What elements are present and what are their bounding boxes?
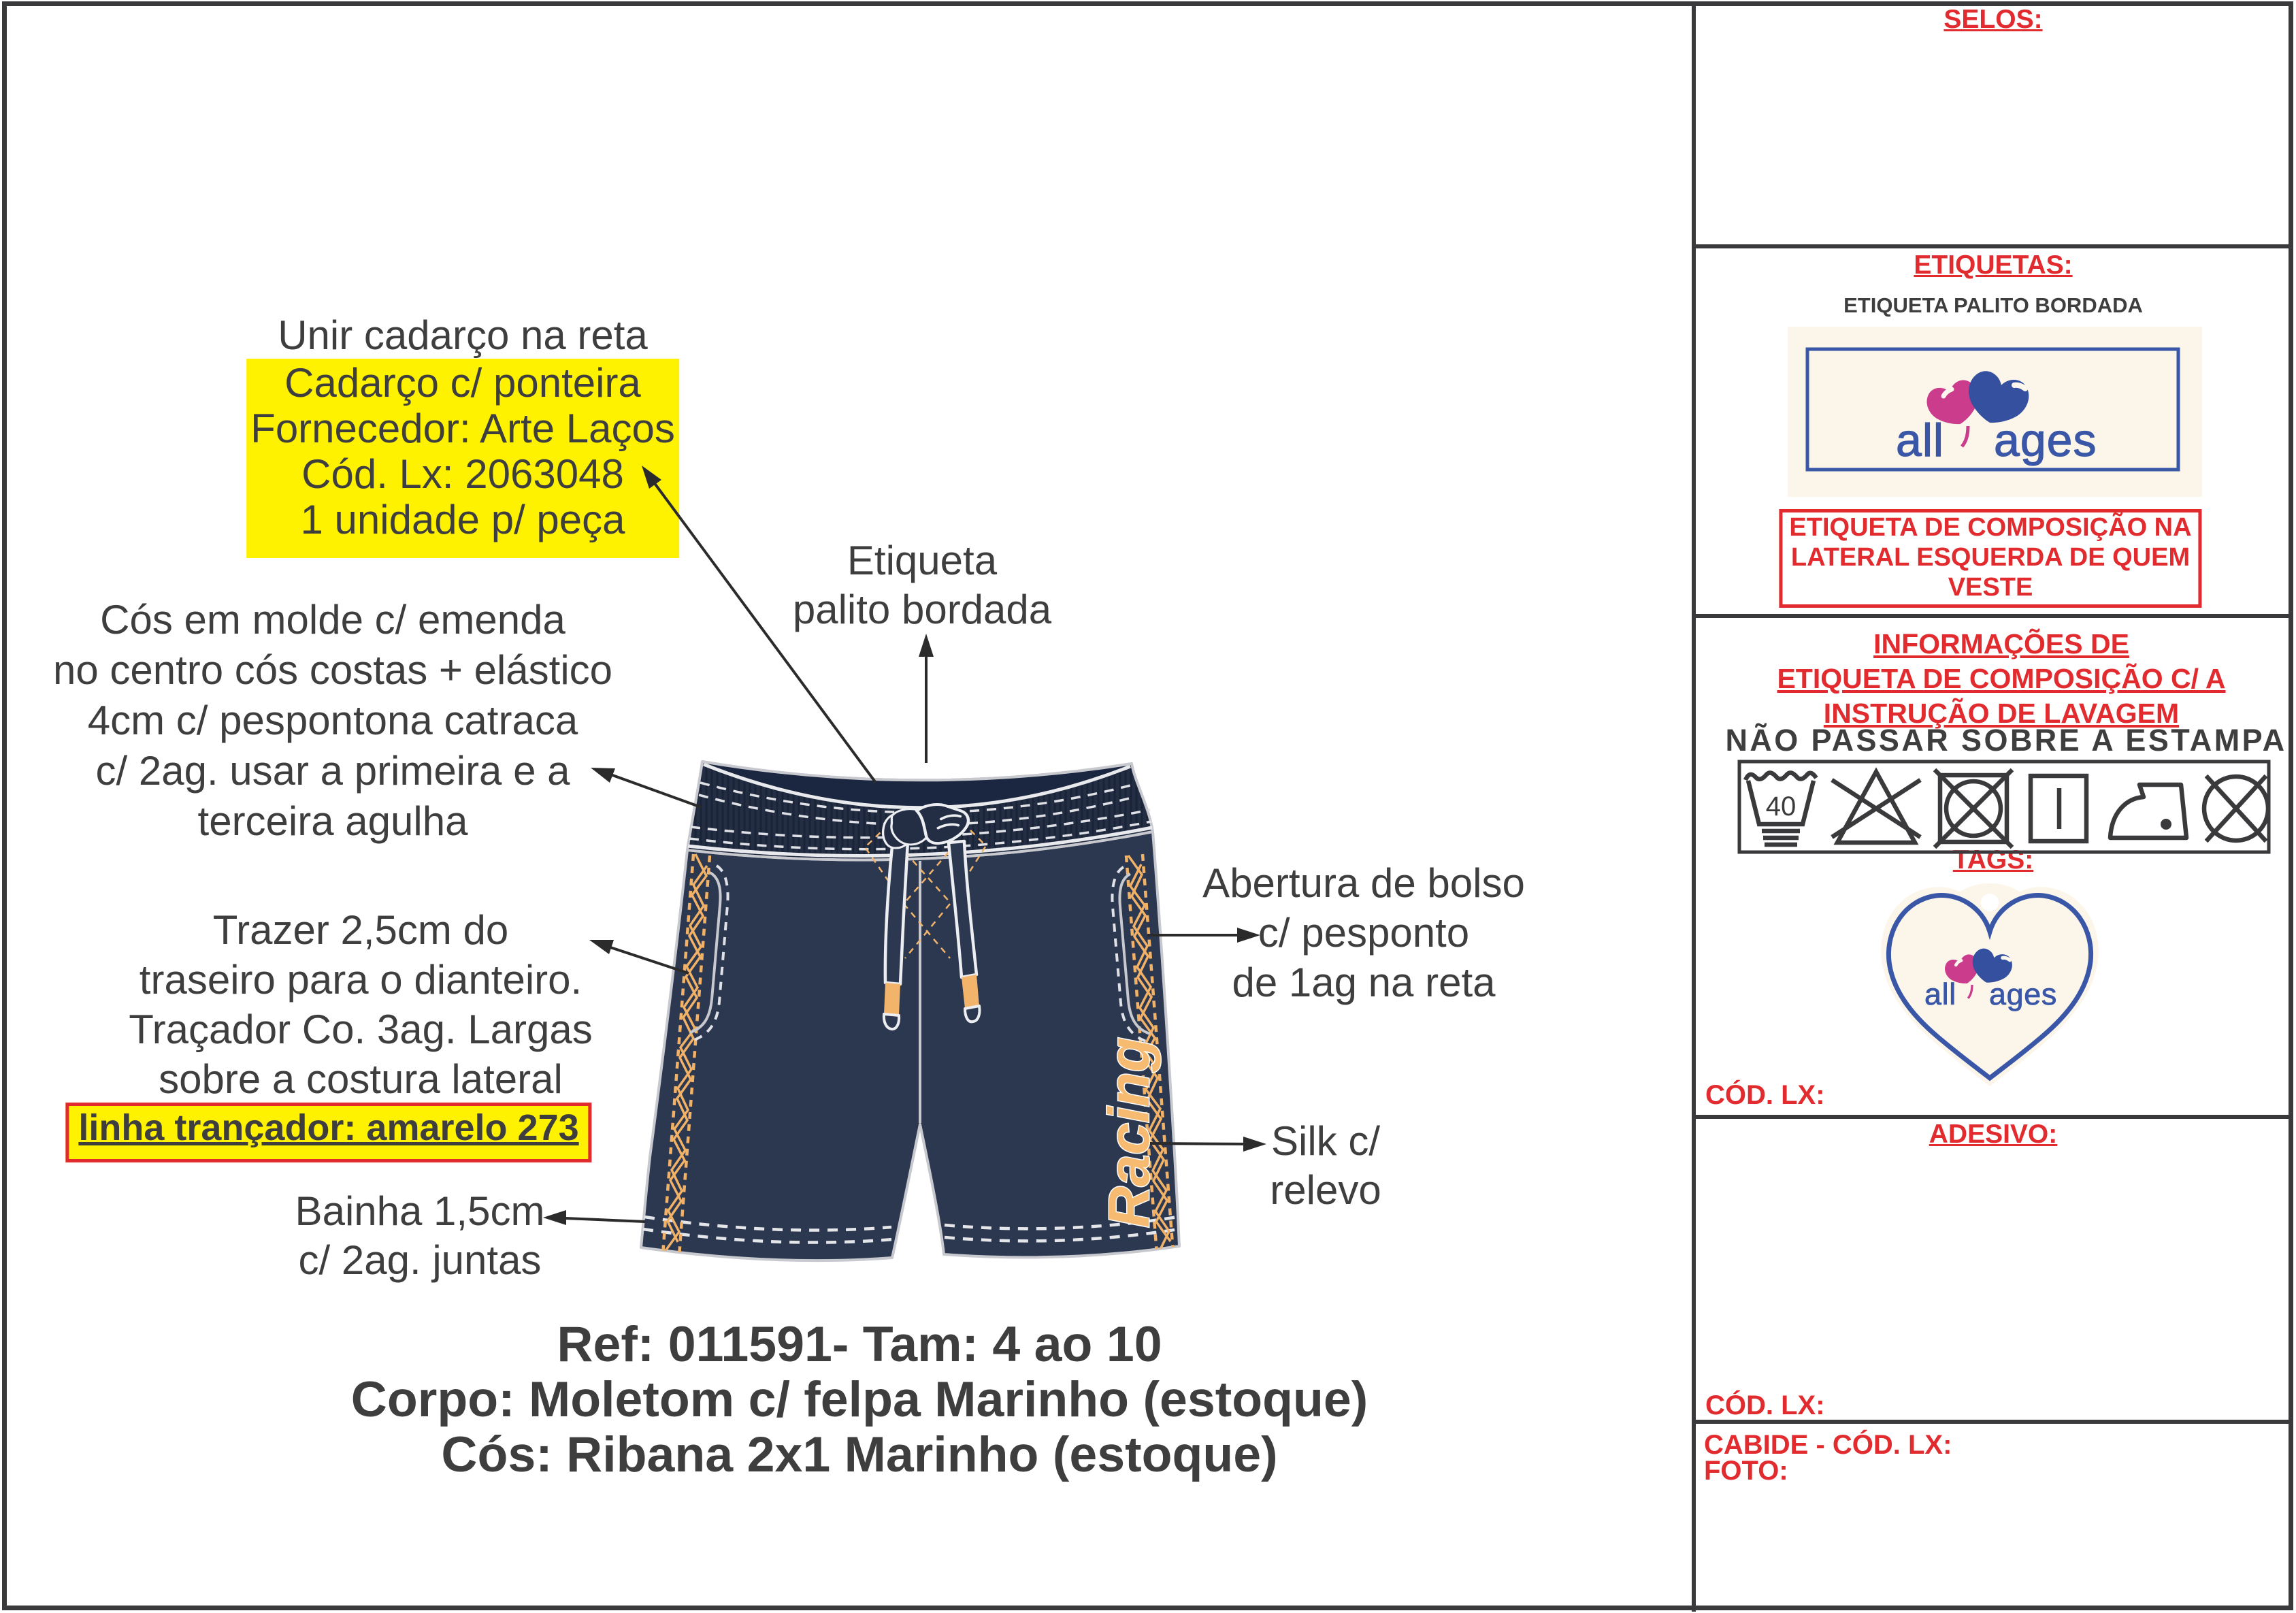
svg-text:40: 40 (1766, 792, 1797, 821)
svg-text:Racing: Racing (1097, 1037, 1161, 1228)
